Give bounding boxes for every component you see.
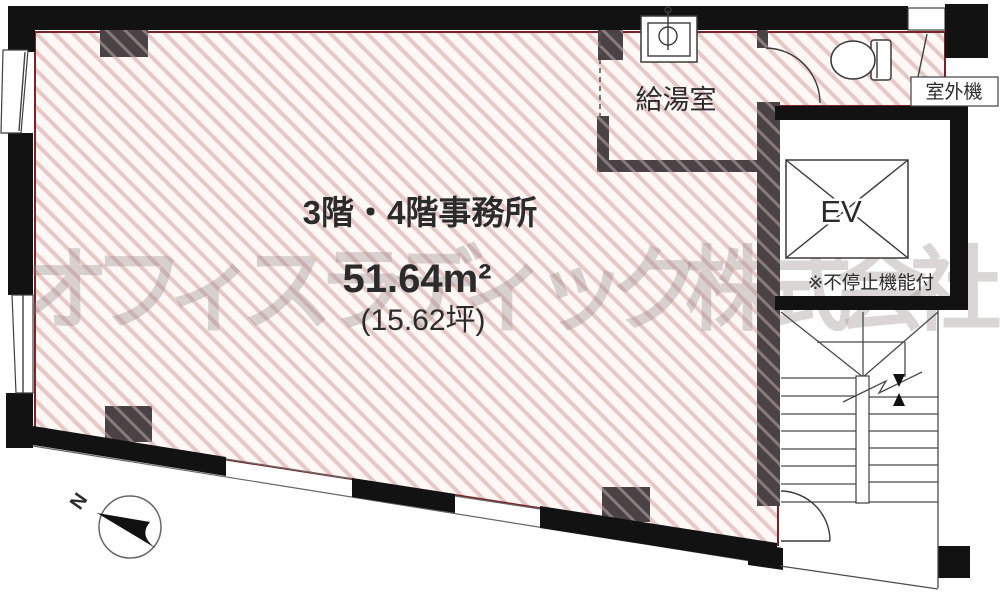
stair-door-jamb — [748, 543, 783, 570]
left-wall-seg — [6, 393, 33, 448]
sink-icon — [641, 7, 697, 62]
ev-top-wall — [775, 106, 965, 120]
stair-bottom-edge — [780, 566, 938, 589]
left-wall-seg — [8, 133, 33, 295]
unit-area-tsubo: (15.62坪) — [360, 304, 485, 337]
bottom-right-pier — [938, 546, 970, 578]
elevator-note: ※不停止機能付 — [808, 272, 935, 293]
kitchenette-label: 給湯室 — [636, 85, 717, 115]
stair-door-arc — [781, 491, 830, 541]
compass: N — [66, 489, 161, 558]
kitchenette-wall-h — [597, 160, 765, 172]
left-wall-seg — [8, 6, 35, 52]
column — [602, 487, 650, 522]
unit-title: 3階・4階事務所 — [303, 194, 538, 231]
floor-plan-canvas: オフィスラディック株式会社 — [0, 0, 1000, 605]
ev-right-wall — [950, 106, 968, 310]
elevator-label: EV — [820, 194, 862, 229]
top-wall — [12, 6, 908, 30]
floor-plan-drawing: オフィスラディック株式会社 — [0, 0, 1000, 605]
top-right-wall — [945, 4, 988, 58]
up-arrow-icon — [893, 393, 905, 406]
outdoor-unit-label: 室外機 — [925, 81, 982, 103]
ev-bottom-wall — [775, 296, 968, 310]
stair-treads-right — [869, 397, 938, 482]
outdoor-unit-nook — [908, 8, 945, 30]
unit-area-sqm: 51.64m² — [343, 257, 492, 301]
stair-treads-left — [781, 378, 856, 484]
north-label: N — [66, 489, 92, 513]
staircase — [780, 310, 938, 589]
toilet-bowl — [831, 41, 875, 79]
elevator: EV ※不停止機能付 — [786, 160, 934, 293]
column — [105, 406, 152, 442]
